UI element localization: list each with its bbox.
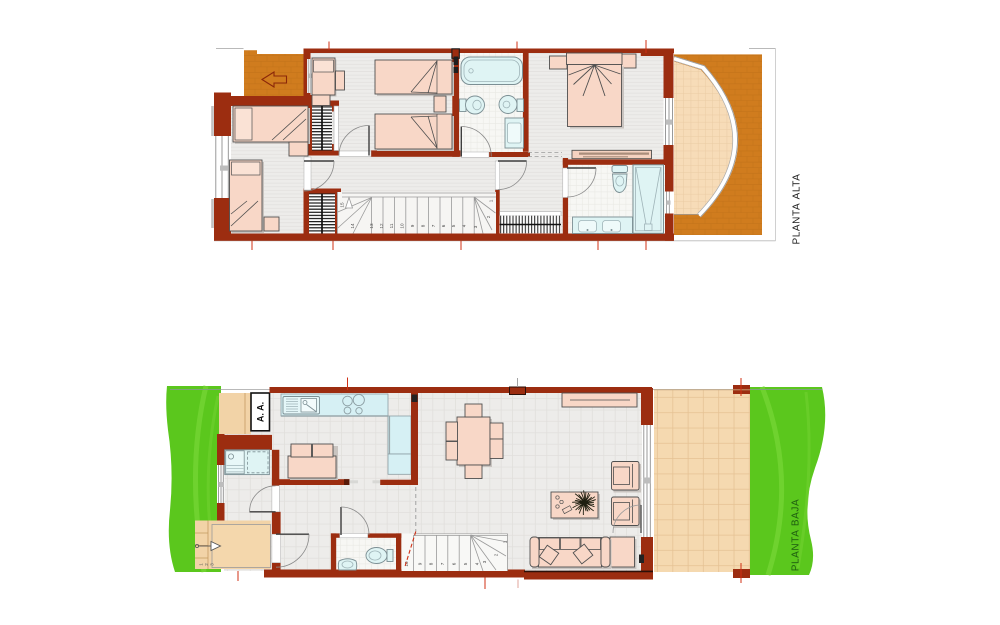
svg-text:8: 8 <box>429 562 434 565</box>
svg-text:15: 15 <box>340 202 345 208</box>
svg-text:6: 6 <box>452 562 457 565</box>
svg-text:9: 9 <box>410 224 415 227</box>
svg-text:PLANTA BAJA: PLANTA BAJA <box>791 499 802 572</box>
svg-text:13: 13 <box>369 223 374 229</box>
svg-text:5: 5 <box>451 224 456 227</box>
svg-text:4: 4 <box>474 562 479 565</box>
svg-text:6: 6 <box>441 224 446 227</box>
svg-text:7: 7 <box>431 224 436 227</box>
svg-text:A. A.: A. A. <box>256 402 266 422</box>
svg-text:12: 12 <box>379 223 384 229</box>
svg-text:10: 10 <box>400 223 405 229</box>
svg-text:7: 7 <box>440 562 445 565</box>
svg-text:14: 14 <box>350 223 355 229</box>
svg-text:4: 4 <box>462 224 467 227</box>
svg-text:PLANTA ALTA: PLANTA ALTA <box>792 173 803 244</box>
svg-text:1: 1 <box>503 540 508 543</box>
svg-text:11: 11 <box>389 223 394 228</box>
svg-text:1: 1 <box>489 199 494 202</box>
svg-text:5: 5 <box>463 562 468 565</box>
svg-text:2: 2 <box>486 215 491 218</box>
svg-text:8: 8 <box>420 224 425 227</box>
svg-text:3: 3 <box>482 560 487 563</box>
svg-text:9: 9 <box>417 562 422 565</box>
svg-text:3: 3 <box>473 225 478 228</box>
svg-text:2: 2 <box>494 553 499 556</box>
